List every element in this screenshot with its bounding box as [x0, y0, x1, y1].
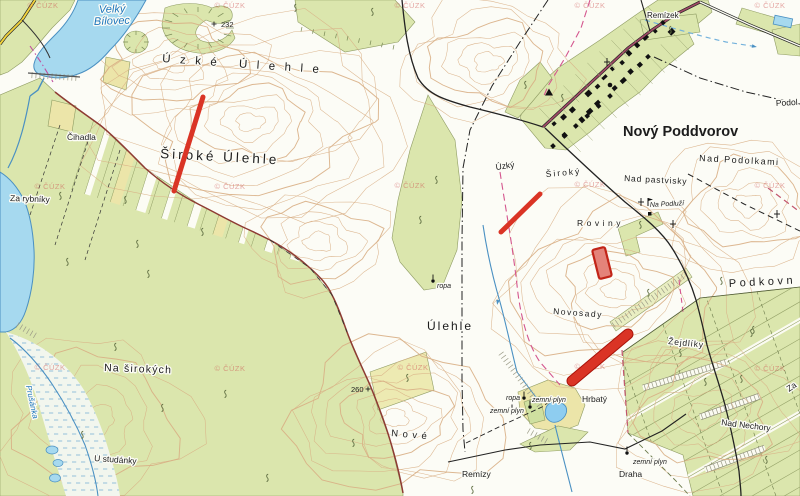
cuzk-watermark: © ČÚZK [214, 182, 245, 191]
place-label: Bílovec [94, 15, 131, 28]
place-label: ropa [437, 283, 451, 290]
place-label: Roviny [577, 218, 624, 228]
cuzk-watermark: © ČÚZK [394, 1, 425, 10]
place-label: zemní plyn [632, 459, 667, 466]
place-label: Čihadla [67, 132, 96, 142]
place-label: Hrbatý [582, 394, 608, 404]
cuzk-watermark: © ČÚZK [34, 182, 65, 191]
settlement-dot-icon [608, 83, 613, 88]
place-label: Za rybníky [10, 193, 51, 204]
cuzk-watermark: © ČÚZK [754, 181, 785, 190]
cuzk-watermark: © ČÚZK [34, 363, 65, 372]
place-label: Draha [619, 469, 642, 479]
cuzk-watermark: © ČÚZK [574, 1, 605, 10]
cuzk-watermark: © ČÚZK [394, 181, 425, 190]
place-label: Na širokých [104, 362, 172, 376]
svg-text:260: 260 [351, 385, 364, 394]
place-label: Podol [776, 97, 798, 108]
svg-text:232: 232 [221, 20, 234, 29]
place-label: Remízek [647, 11, 680, 20]
place-label: zemní plyn [489, 408, 524, 415]
place-label: zemní plyn [531, 397, 566, 404]
cuzk-watermark: © ČÚZK [754, 1, 785, 10]
cuzk-watermark: © ČÚZK [27, 1, 58, 10]
cuzk-watermark: © ČÚZK [574, 180, 605, 189]
cuzk-watermark: © ČÚZK [754, 364, 785, 373]
place-label: Úlehle [427, 318, 473, 333]
place-label: Nový Poddvorov [623, 124, 738, 140]
place-label: ropa [506, 395, 520, 402]
cuzk-watermark: © ČÚZK [214, 1, 245, 10]
topographic-map[interactable]: 232260 VelkýBílovecÚzké ÚlehleŠiroké Úle… [0, 0, 800, 496]
place-label: Remízy [462, 469, 492, 479]
cuzk-watermark: © ČÚZK [397, 363, 428, 372]
cuzk-watermark: © ČÚZK [214, 364, 245, 373]
topo-map-canvas[interactable]: 232260 VelkýBílovecÚzké ÚlehleŠiroké Úle… [0, 0, 800, 496]
